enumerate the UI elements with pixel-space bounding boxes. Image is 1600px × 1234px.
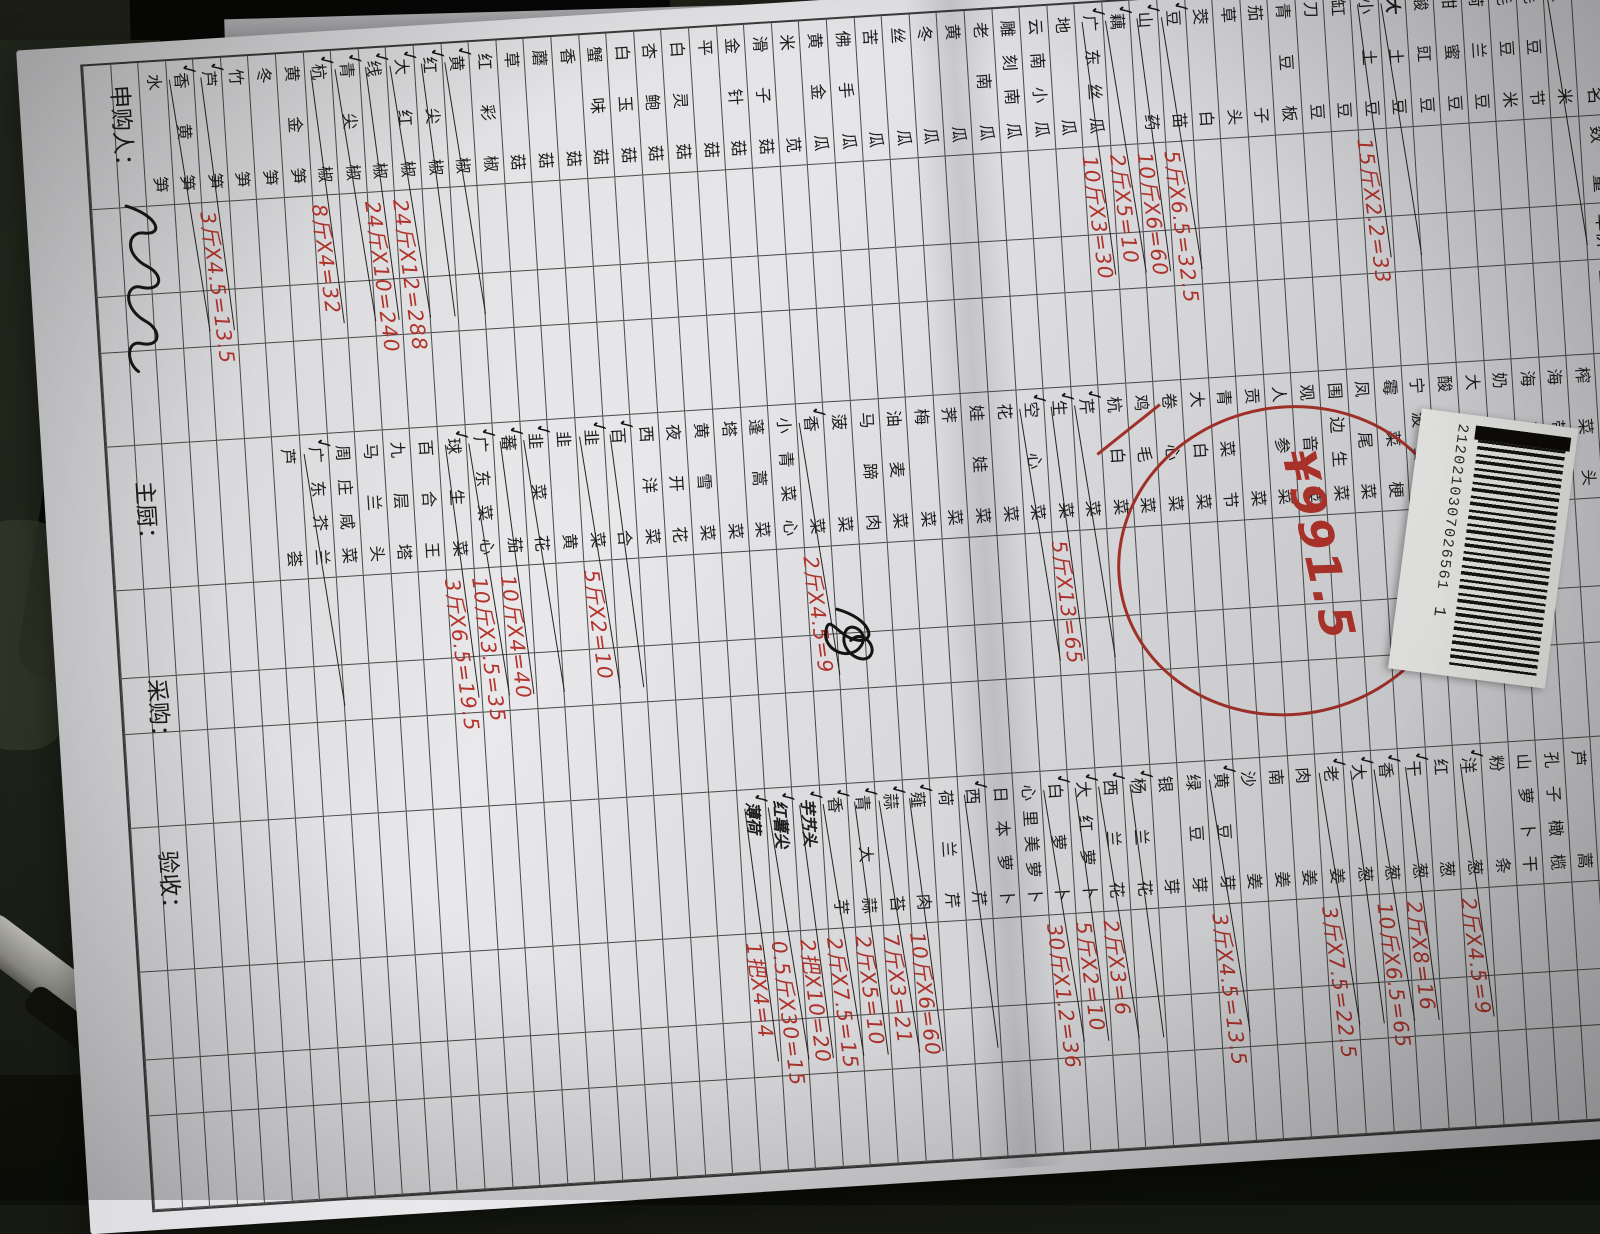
item-price-cell bbox=[531, 1035, 561, 1093]
item-qty-cell bbox=[1524, 118, 1556, 207]
item-price-cell bbox=[1550, 970, 1580, 1028]
item-qty-cell bbox=[195, 968, 227, 1057]
item-qty-cell bbox=[608, 942, 640, 1031]
item-qty-cell bbox=[643, 174, 675, 263]
item-qty-cell bbox=[750, 550, 782, 639]
item-qty-cell bbox=[1517, 884, 1549, 973]
item-qty-cell bbox=[1269, 900, 1301, 989]
item-qty-cell bbox=[278, 962, 310, 1051]
footer-label-purchaser: 采购： bbox=[142, 678, 180, 749]
item-qty-cell bbox=[1469, 122, 1501, 211]
item-price-cell bbox=[614, 1029, 644, 1087]
item-qty-cell bbox=[1545, 883, 1577, 972]
item-price-cell bbox=[177, 674, 207, 732]
item-qty-cell bbox=[639, 557, 671, 646]
item-qty-cell bbox=[1249, 136, 1281, 225]
item-price-cell bbox=[1282, 222, 1312, 280]
item-price-cell bbox=[1275, 988, 1305, 1046]
item-price-cell bbox=[291, 284, 321, 342]
item-qty-cell bbox=[526, 947, 558, 1036]
item-qty-cell bbox=[392, 572, 424, 661]
item-qty-cell bbox=[863, 160, 895, 249]
item-qty-cell bbox=[753, 167, 785, 256]
item-price-cell bbox=[394, 1043, 424, 1101]
item-qty-cell bbox=[553, 945, 585, 1034]
item-price-cell bbox=[704, 258, 734, 316]
item-price-cell bbox=[456, 274, 486, 332]
item-price-cell bbox=[697, 1024, 727, 1082]
item-price-cell bbox=[204, 672, 234, 730]
item-qty-cell bbox=[1442, 124, 1474, 213]
item-price-cell bbox=[1227, 225, 1257, 283]
item-qty-cell bbox=[1242, 902, 1274, 991]
footer-label-inspector: 验收： bbox=[153, 849, 191, 920]
item-price-cell bbox=[621, 263, 651, 321]
item-qty-cell bbox=[726, 169, 758, 258]
item-price-cell bbox=[339, 1047, 369, 1105]
item-price-cell bbox=[566, 267, 596, 325]
item-qty-cell bbox=[505, 182, 537, 271]
item-qty-cell bbox=[281, 579, 313, 668]
item-price-cell bbox=[814, 251, 844, 309]
item-price-cell bbox=[728, 639, 758, 697]
item-price-cell bbox=[232, 671, 262, 729]
item-qty-cell bbox=[478, 184, 510, 273]
item-price-cell bbox=[700, 641, 730, 699]
item-qty-cell bbox=[887, 541, 919, 630]
item-price-cell bbox=[342, 664, 372, 722]
item-qty-cell bbox=[364, 574, 396, 663]
item-price-cell bbox=[1581, 586, 1600, 644]
item-price-cell bbox=[1309, 220, 1339, 278]
item-price-cell bbox=[538, 269, 568, 327]
item-price-cell bbox=[1062, 236, 1092, 294]
item-price-cell bbox=[669, 1026, 699, 1084]
item-price-cell bbox=[263, 286, 293, 344]
item-price-cell bbox=[1475, 210, 1505, 268]
item-qty-cell bbox=[361, 957, 393, 1046]
item-price-cell bbox=[786, 253, 816, 311]
item-price-cell bbox=[1502, 208, 1532, 266]
item-price-cell bbox=[755, 638, 785, 696]
item-price-cell bbox=[535, 652, 565, 710]
item-price-cell bbox=[1554, 587, 1584, 645]
item-qty-cell bbox=[498, 948, 530, 1037]
item-price-cell bbox=[259, 669, 289, 727]
item-price-cell bbox=[483, 272, 513, 330]
item-qty-cell bbox=[1221, 137, 1253, 226]
item-price-cell bbox=[641, 1028, 671, 1086]
item-qty-cell bbox=[781, 165, 813, 254]
item-qty-cell bbox=[140, 971, 172, 1060]
item-price-cell bbox=[645, 645, 675, 703]
item-qty-cell bbox=[1414, 125, 1446, 214]
item-price-cell bbox=[256, 1052, 286, 1110]
item-qty-cell bbox=[560, 179, 592, 268]
requester-signature bbox=[108, 196, 177, 379]
item-price-cell bbox=[724, 1022, 754, 1080]
item-price-cell bbox=[1420, 213, 1450, 271]
item-qty-cell bbox=[663, 938, 695, 1027]
item-qty-cell bbox=[1029, 150, 1061, 239]
item-qty-cell bbox=[199, 585, 231, 674]
item-qty-cell bbox=[615, 176, 647, 265]
item-price-cell bbox=[1447, 211, 1477, 269]
item-price-cell bbox=[421, 1041, 451, 1099]
header-cell-price: 单价 bbox=[1585, 202, 1600, 260]
item-price-cell bbox=[562, 650, 592, 708]
item-qty-cell bbox=[691, 936, 723, 1025]
item-qty-cell bbox=[257, 198, 289, 287]
item-price-cell bbox=[397, 660, 427, 718]
item-price-cell bbox=[1254, 224, 1284, 282]
item-price-cell bbox=[1530, 206, 1560, 264]
item-price-cell bbox=[593, 265, 623, 323]
item-qty-cell bbox=[388, 955, 420, 1044]
item-price-cell bbox=[449, 1040, 479, 1098]
item-qty-cell bbox=[698, 170, 730, 259]
item-price-cell bbox=[1086, 617, 1116, 675]
item-price-cell bbox=[283, 1050, 313, 1108]
item-qty-cell bbox=[230, 200, 262, 289]
item-price-cell bbox=[146, 1059, 176, 1117]
item-price-cell bbox=[649, 262, 679, 320]
item-qty-cell bbox=[1276, 134, 1308, 223]
item-price-cell bbox=[511, 270, 541, 328]
paper-sheet: 2021年3月7日 5斤X3.5=17.5 总 皇家蔬菜汇总单 品名数量单价金额… bbox=[16, 0, 1600, 1234]
barcode-sticker: 21202103070265611 bbox=[1388, 408, 1578, 688]
ink-scribble bbox=[812, 599, 881, 685]
item-qty-cell bbox=[1490, 886, 1522, 975]
item-price-cell bbox=[1165, 995, 1195, 1053]
item-qty-cell bbox=[1497, 120, 1529, 209]
item-qty-cell bbox=[1304, 132, 1336, 221]
item-price-cell bbox=[673, 643, 703, 701]
item-price-cell bbox=[201, 1055, 231, 1113]
item-qty-cell bbox=[471, 950, 503, 1039]
item-qty-cell bbox=[671, 172, 703, 261]
item-price-cell bbox=[311, 1048, 341, 1106]
item-qty-cell bbox=[667, 555, 699, 644]
item-price-cell bbox=[759, 255, 789, 313]
item-price-cell bbox=[1495, 974, 1525, 1032]
item-price-cell bbox=[1578, 969, 1600, 1027]
item-price-cell bbox=[1523, 972, 1553, 1030]
item-price-cell bbox=[504, 1036, 534, 1094]
item-price-cell bbox=[1034, 237, 1064, 295]
item-qty-cell bbox=[836, 162, 868, 251]
item-qty-cell bbox=[250, 964, 282, 1053]
item-price-cell bbox=[586, 1031, 616, 1089]
item-price-cell bbox=[366, 1045, 396, 1103]
item-qty-cell bbox=[1194, 139, 1226, 228]
item-price-cell bbox=[173, 1057, 203, 1115]
item-price-cell bbox=[731, 256, 761, 314]
item-price-cell bbox=[476, 1038, 506, 1096]
item-qty-cell bbox=[226, 583, 258, 672]
item-price-cell bbox=[893, 629, 923, 687]
item-price-cell bbox=[559, 1033, 589, 1091]
item-qty-cell bbox=[722, 552, 754, 641]
item-qty-cell bbox=[636, 940, 668, 1029]
item-qty-cell bbox=[416, 954, 448, 1043]
item-price-cell bbox=[228, 1054, 258, 1112]
item-qty-cell bbox=[695, 553, 727, 642]
item-qty-cell bbox=[144, 588, 176, 677]
photo-of-vegetable-order-form: { "scene": { "desk_color": "#171a12", "p… bbox=[0, 0, 1600, 1200]
item-price-cell bbox=[370, 662, 400, 720]
item-price-cell bbox=[676, 260, 706, 318]
item-price-cell bbox=[841, 250, 871, 308]
footer-label-chef: 主厨： bbox=[129, 480, 167, 551]
item-qty-cell bbox=[533, 181, 565, 270]
item-qty-cell bbox=[808, 163, 840, 252]
item-qty-cell bbox=[223, 966, 255, 1055]
item-qty-cell bbox=[171, 586, 203, 675]
item-qty-cell bbox=[168, 969, 200, 1058]
item-qty-cell bbox=[337, 576, 369, 665]
item-qty-cell bbox=[588, 177, 620, 266]
item-qty-cell bbox=[1159, 907, 1191, 996]
item-price-cell bbox=[869, 248, 899, 306]
item-qty-cell bbox=[581, 943, 613, 1032]
item-qty-cell bbox=[116, 590, 148, 679]
footer-label-requester: 申购人： bbox=[105, 84, 145, 178]
vegetable-summary-form: 2021年3月7日 5斤X3.5=17.5 总 皇家蔬菜汇总单 品名数量单价金额… bbox=[28, 0, 1600, 1226]
item-qty-cell bbox=[443, 952, 475, 1041]
item-qty-cell bbox=[333, 959, 365, 1048]
item-qty-cell bbox=[1572, 881, 1600, 970]
item-price-cell bbox=[287, 667, 317, 725]
item-qty-cell bbox=[254, 581, 286, 670]
item-qty-cell bbox=[305, 961, 337, 1050]
